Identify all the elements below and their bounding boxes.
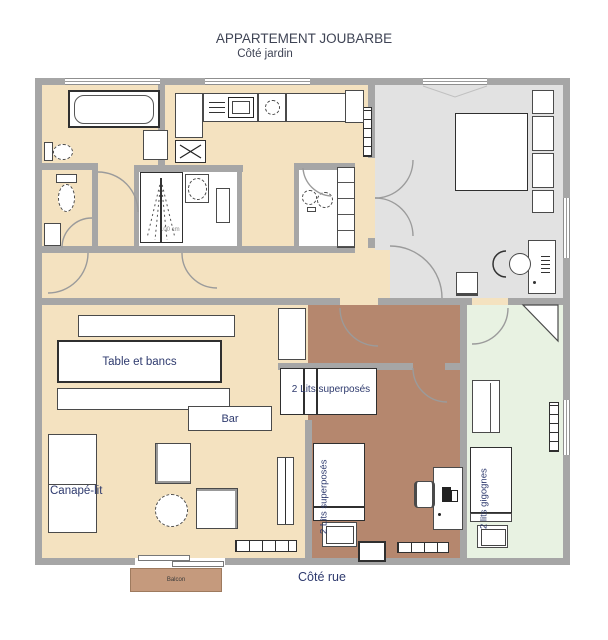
garden-side-label: Côté jardin (160, 48, 370, 60)
kitchen-counter-sink (203, 93, 258, 122)
trundle-bed-label: 2 lits gigognes (476, 450, 492, 548)
green-desk (472, 380, 500, 433)
wc2-handbasin (44, 223, 61, 246)
shower-dimension-label: 100 cm (160, 227, 180, 233)
bar-counter: Bar (188, 406, 272, 431)
wall-shower-right (237, 168, 242, 248)
gray-desk-chair (509, 253, 531, 275)
brown-desk-chair (414, 481, 435, 508)
wc-cistern (307, 207, 316, 212)
bar-label: Bar (221, 413, 238, 425)
balcony-label: Balcon (167, 577, 185, 583)
wall-hall-bottom-mid (378, 298, 472, 305)
kitchen-sink (228, 97, 254, 118)
shower-washbasin (185, 174, 209, 203)
page-title: APPARTEMENT JOUBARBE (0, 31, 608, 46)
fridge (175, 93, 203, 138)
toilet-bowl (53, 144, 73, 160)
wall-outer-right (563, 78, 570, 565)
floor-wc-room (294, 168, 340, 250)
wc-toilet (317, 192, 333, 208)
bedside-cabinet-2 (532, 116, 554, 151)
towel-radiator (216, 188, 230, 223)
window-bathroom (65, 78, 160, 85)
wall-below-bathroom (35, 163, 98, 170)
radiator-brown-bottom (397, 542, 449, 553)
kitchen-counter-3 (286, 93, 346, 122)
window-gray-bedroom-right (563, 198, 570, 258)
floor-plan-page: APPARTEMENT JOUBARBE Côté jardin (0, 0, 608, 640)
wc2-toilet-tank (56, 174, 77, 183)
washbasin-column (143, 130, 168, 160)
bathtub (68, 90, 160, 128)
wall-kitchen-gray-bottom (368, 238, 375, 248)
wall-shower-left (134, 168, 139, 248)
bedside-cabinet-4 (532, 190, 554, 213)
floor-doorway-patch (368, 158, 375, 238)
window-green-bedroom-right (563, 400, 570, 455)
drainer-icon (209, 101, 225, 113)
kitchen-counter-2 (258, 93, 286, 122)
hall-wardrobe (337, 167, 355, 248)
armchair-2 (196, 488, 238, 529)
radiator-living-vertical (277, 457, 294, 525)
wc-washbasin (302, 190, 317, 205)
wall-hall-bottom-right (508, 298, 563, 305)
window-gray-bedroom-top (423, 78, 487, 85)
floor-hallway-patch (355, 250, 390, 298)
stove (175, 140, 206, 163)
radiator-living-bottom (235, 540, 297, 552)
wall-living-brown (305, 420, 312, 558)
round-side-table (155, 494, 188, 527)
bunk-bed-horizontal-label: 2 Lits superposés (286, 384, 376, 395)
bunk-bed-vertical-label: 2 Lits superposés (316, 446, 332, 548)
brown-entry-wardrobe (278, 308, 306, 360)
radiator-green-right (549, 402, 559, 452)
wall-hall-bottom-left (42, 298, 340, 305)
keyboard-icon (541, 255, 550, 273)
bedside-cabinet-3 (532, 153, 554, 188)
double-bed (455, 113, 528, 191)
bedside-cabinet-1 (532, 90, 554, 114)
computer-icon (442, 487, 451, 502)
wall-outer-left (35, 78, 42, 565)
gray-desk (528, 240, 556, 294)
bench-top (78, 315, 235, 337)
window-kitchen (205, 78, 310, 85)
wall-wc-right (92, 163, 98, 252)
brown-desk (433, 467, 463, 530)
toilet-tank (44, 142, 53, 161)
sofa-bed-upper (48, 434, 97, 485)
armchair-1 (155, 443, 191, 484)
gray-stool (456, 272, 478, 296)
balcony: Balcon (130, 568, 222, 592)
wall-hall-top (35, 246, 355, 253)
radiator-gray-left (363, 107, 372, 157)
wall-shower-top (134, 165, 243, 172)
dining-table: Table et bancs (57, 340, 222, 383)
wc2-toilet-bowl (58, 184, 75, 212)
kitchen-tall-cabinet (345, 90, 364, 123)
dining-table-label: Table et bancs (102, 356, 176, 368)
street-side-label: Côté rue (262, 570, 382, 584)
bathtub-basin (74, 95, 154, 124)
wall-outer-bottom (35, 558, 570, 565)
wall-wc-left (294, 168, 299, 248)
sofa-bed-label: Canapé-lit (50, 485, 102, 497)
balcony-door-leaf-2 (172, 561, 224, 567)
street-entry-door (358, 541, 386, 562)
small-sink-bowl (265, 100, 280, 115)
